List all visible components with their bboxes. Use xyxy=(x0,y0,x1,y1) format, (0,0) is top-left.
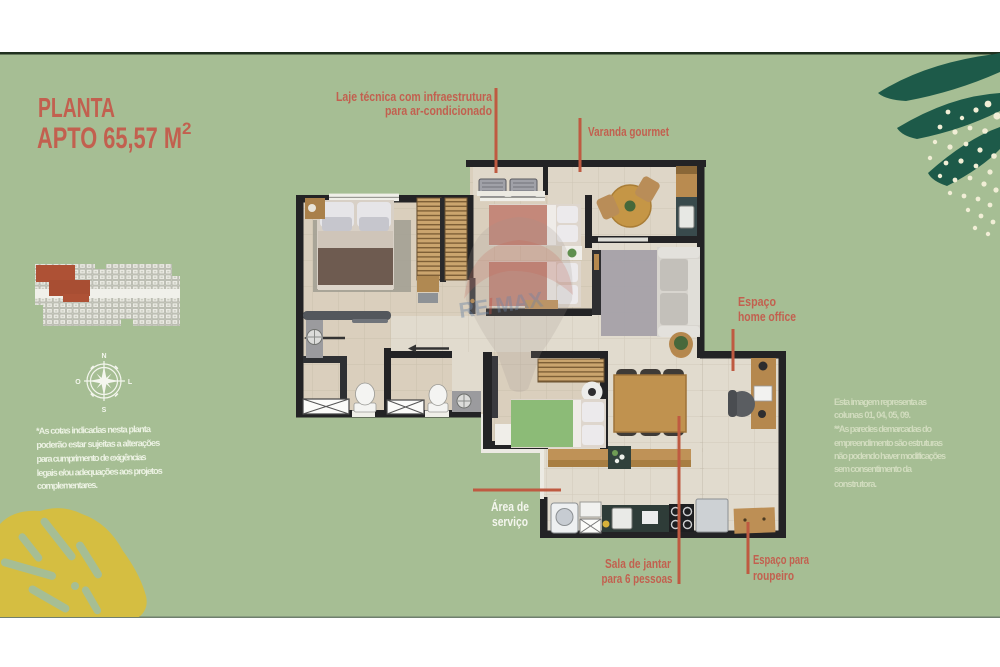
svg-text:S: S xyxy=(102,407,107,414)
svg-text:sem consentimento da: sem consentimento da xyxy=(834,464,913,474)
svg-text:2: 2 xyxy=(182,119,191,138)
svg-text:Sala de jantar: Sala de jantar xyxy=(605,557,671,571)
svg-text:home office: home office xyxy=(738,310,796,324)
svg-text:Área de: Área de xyxy=(491,499,529,514)
svg-text:serviço: serviço xyxy=(492,515,528,529)
svg-text:Varanda gourmet: Varanda gourmet xyxy=(588,125,670,139)
svg-text:N: N xyxy=(101,353,106,360)
svg-text:L: L xyxy=(128,379,133,386)
svg-text:APTO 65,57 M: APTO 65,57 M xyxy=(37,122,182,155)
svg-text:para cumprimento de exigências: para cumprimento de exigências xyxy=(36,452,146,464)
svg-text:RE: RE xyxy=(457,295,490,323)
svg-text:*As cotas indicadas nesta plan: *As cotas indicadas nesta planta xyxy=(36,424,152,436)
svg-text:para ar-condicionado: para ar-condicionado xyxy=(385,104,492,118)
svg-text:Esta imagem representa as: Esta imagem representa as xyxy=(834,397,927,407)
svg-text:colunas 01, 04, 05, 09.: colunas 01, 04, 05, 09. xyxy=(834,410,911,420)
svg-text:Laje técnica com infraestrutur: Laje técnica com infraestrutura xyxy=(336,90,493,104)
svg-text:**As paredes demarcadas do: **As paredes demarcadas do xyxy=(834,424,932,434)
svg-text:para 6 pessoas: para 6 pessoas xyxy=(602,572,673,586)
svg-text:complementares.: complementares. xyxy=(37,480,98,491)
svg-text:construtora.: construtora. xyxy=(834,479,877,489)
svg-text:Espaço para: Espaço para xyxy=(753,553,810,567)
svg-text:O: O xyxy=(75,379,81,386)
svg-text:roupeiro: roupeiro xyxy=(753,569,794,583)
svg-text:não podendo haver modificações: não podendo haver modificações xyxy=(834,451,946,461)
svg-text:empreendimento são estruturas: empreendimento são estruturas xyxy=(834,438,943,448)
svg-text:PLANTA: PLANTA xyxy=(38,92,115,123)
svg-text:Espaço: Espaço xyxy=(738,295,776,309)
